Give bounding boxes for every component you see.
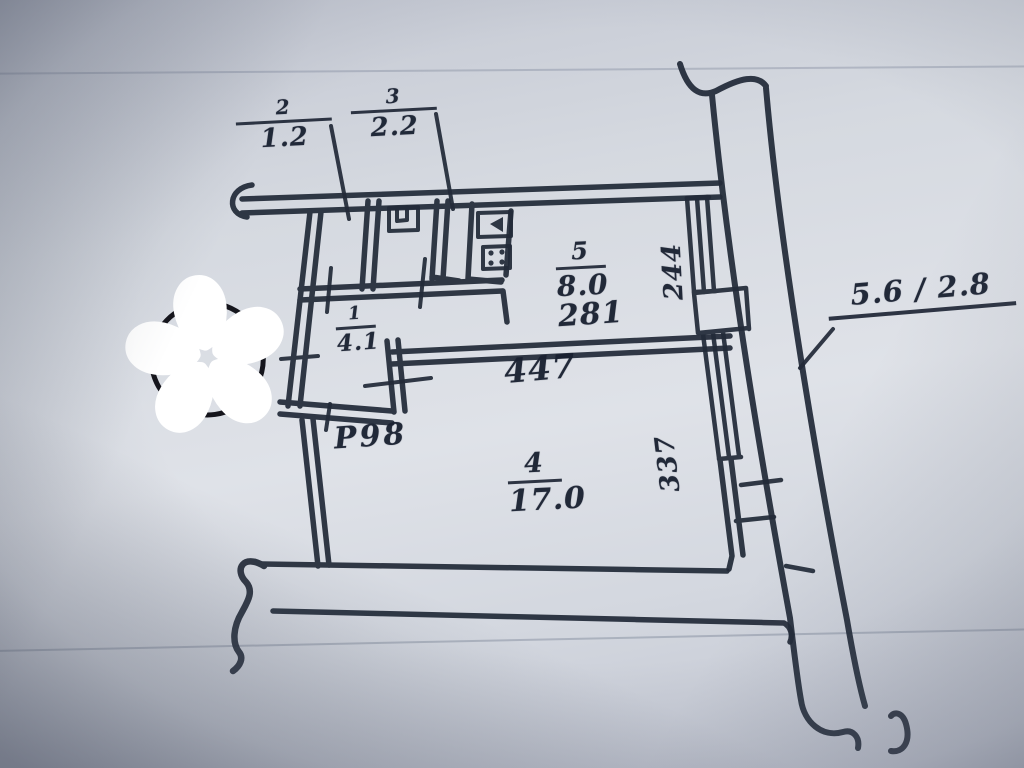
top-wall-inner <box>242 197 720 213</box>
room-2-number: 2 <box>235 95 332 126</box>
room-1-label: 1 4.1 <box>334 304 377 356</box>
room-3-number: 3 <box>350 84 437 114</box>
shaft-bottom-hook <box>891 713 908 751</box>
bottom-wall-outer <box>273 611 791 642</box>
shaft-right-line <box>766 88 865 706</box>
door-tick-room1-left <box>327 268 331 312</box>
room4-left-lower-wall <box>302 419 329 566</box>
leader-external-dimension <box>800 329 833 368</box>
room-1-area: 4.1 <box>336 329 378 356</box>
kitchen-fixtures <box>389 207 511 269</box>
left-wall-inner <box>300 212 321 406</box>
stove-burner-dots <box>488 249 504 265</box>
room-3-area: 2.2 <box>351 112 438 143</box>
room-2-label: 2 1.2 <box>235 95 334 155</box>
balcony-door-tick <box>741 480 781 485</box>
wall-room3-kitchen <box>432 201 459 281</box>
floor-plan-photo: { "plan": { "title_hint": "apartment flo… <box>0 0 1024 768</box>
window-upper-lines <box>687 197 714 292</box>
room-1-number: 1 <box>334 304 376 330</box>
watermark-group <box>118 270 296 442</box>
room-5-label: 5 8.0 <box>554 238 607 302</box>
door-tick-room1-right <box>420 259 425 307</box>
door-cross-room4 <box>365 378 431 386</box>
bottom-wall-inner <box>262 564 727 571</box>
dimension-window-lower-vertical: 337 <box>652 433 686 493</box>
room-4-area: 17.0 <box>508 484 564 518</box>
dimension-window-upper-vertical: 244 <box>659 242 689 301</box>
dimension-room5-width: 281 <box>557 297 625 333</box>
room-3-label: 3 2.2 <box>350 84 439 143</box>
room-4-label: 4 17.0 <box>506 449 563 518</box>
room-2-area: 1.2 <box>236 122 333 154</box>
mid-wall-right-jamb <box>503 291 507 322</box>
bottom-wall-break-hook <box>233 561 264 671</box>
top-wall-outer <box>242 183 720 199</box>
room-5-number: 5 <box>554 238 605 271</box>
watermark-flower <box>118 268 298 448</box>
doorway-width-label: Р98 <box>333 418 408 454</box>
shaft-top-hook <box>680 64 766 93</box>
dimension-room4-width: 447 <box>503 349 578 389</box>
right-wall-solid-segment <box>720 459 743 569</box>
wall-shaft-connector <box>736 517 774 521</box>
room-4-number: 4 <box>506 449 562 485</box>
bottom-corner-tick <box>786 566 813 571</box>
wall-room2-room3 <box>362 201 379 289</box>
fridge-triangle-icon <box>490 217 503 232</box>
leader-room2 <box>331 126 349 219</box>
